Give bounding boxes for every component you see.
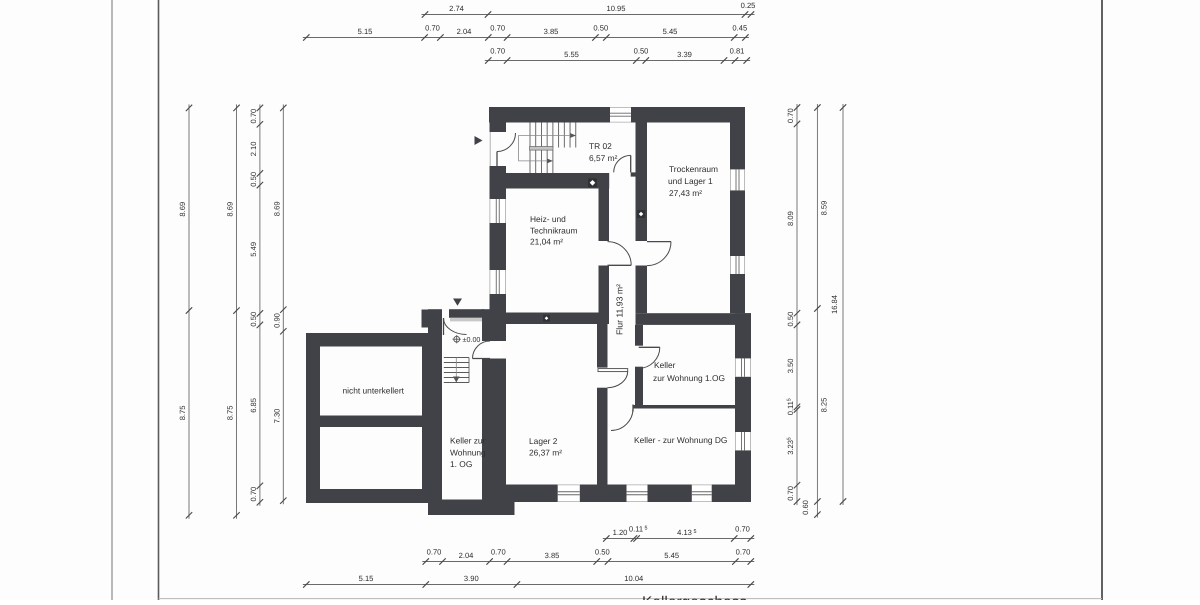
svg-text:6.85: 6.85: [249, 398, 258, 413]
svg-text:0.11: 0.11: [786, 401, 795, 415]
svg-text:zur Wohnung 1.OG: zur Wohnung 1.OG: [653, 373, 725, 383]
svg-text:5.15: 5.15: [359, 574, 374, 583]
svg-text:0.50: 0.50: [634, 47, 649, 56]
svg-text:5: 5: [645, 526, 648, 532]
svg-text:0.60: 0.60: [801, 500, 810, 515]
svg-text:5.15: 5.15: [358, 27, 373, 36]
svg-text:26,37 m²: 26,37 m²: [529, 448, 562, 458]
svg-text:Keller zur: Keller zur: [450, 436, 486, 446]
svg-text:0.70: 0.70: [736, 548, 751, 557]
svg-text:±0.00: ±0.00: [463, 335, 481, 344]
svg-text:27,43 m²: 27,43 m²: [669, 188, 702, 198]
svg-text:5: 5: [787, 398, 793, 401]
svg-text:0.70: 0.70: [490, 47, 505, 56]
svg-text:16.84: 16.84: [830, 295, 839, 314]
svg-text:und Lager 1: und Lager 1: [668, 176, 713, 186]
svg-text:2.74: 2.74: [449, 4, 464, 13]
svg-text:Technikraum: Technikraum: [530, 226, 577, 236]
svg-text:0.70: 0.70: [425, 24, 440, 33]
svg-text:3.85: 3.85: [545, 551, 560, 560]
svg-text:Heiz- und: Heiz- und: [530, 214, 566, 224]
svg-text:Flur 11,93 m²: Flur 11,93 m²: [615, 284, 625, 335]
svg-text:0.25: 0.25: [741, 1, 756, 10]
svg-text:0.50: 0.50: [595, 548, 610, 557]
svg-text:5.45: 5.45: [663, 27, 678, 36]
svg-text:5: 5: [694, 529, 697, 535]
svg-text:7.30: 7.30: [272, 409, 281, 424]
svg-text:4.13: 4.13: [677, 528, 692, 537]
svg-text:3.50: 3.50: [786, 359, 795, 374]
svg-text:5.55: 5.55: [564, 50, 579, 59]
svg-text:Lager 2: Lager 2: [529, 436, 558, 446]
svg-text:2.10: 2.10: [249, 142, 258, 157]
svg-text:0.70: 0.70: [735, 525, 750, 534]
svg-text:8.75: 8.75: [226, 406, 235, 421]
svg-text:0.70: 0.70: [491, 548, 506, 557]
svg-text:3.90: 3.90: [464, 574, 479, 583]
svg-text:10.95: 10.95: [606, 4, 625, 13]
svg-text:6,57 m²: 6,57 m²: [589, 153, 618, 163]
svg-text:TR 02: TR 02: [589, 141, 612, 151]
svg-text:3.85: 3.85: [544, 27, 559, 36]
svg-text:Kellergeschoss: Kellergeschoss: [642, 594, 747, 600]
svg-text:0.11: 0.11: [629, 525, 643, 534]
svg-text:5.49: 5.49: [249, 242, 258, 257]
svg-text:10.04: 10.04: [624, 574, 643, 583]
svg-text:0.70: 0.70: [427, 548, 442, 557]
svg-text:3.39: 3.39: [677, 50, 692, 59]
svg-text:3.23: 3.23: [786, 440, 795, 455]
svg-text:0.70: 0.70: [786, 108, 795, 123]
svg-text:0.70: 0.70: [490, 24, 505, 33]
svg-text:1. OG: 1. OG: [450, 459, 472, 469]
svg-text:0.50: 0.50: [786, 312, 795, 327]
svg-text:8.59: 8.59: [819, 201, 828, 216]
svg-text:0.70: 0.70: [786, 486, 795, 501]
svg-text:5: 5: [787, 437, 793, 440]
svg-text:Trockenraum: Trockenraum: [669, 164, 718, 174]
svg-text:0.70: 0.70: [249, 487, 258, 502]
svg-text:8.09: 8.09: [786, 211, 795, 226]
svg-text:21,04 m²: 21,04 m²: [530, 237, 563, 247]
svg-text:2.04: 2.04: [459, 551, 474, 560]
svg-text:8.25: 8.25: [819, 398, 828, 413]
svg-text:2.04: 2.04: [457, 27, 472, 36]
svg-text:Keller: Keller: [654, 360, 676, 370]
svg-text:8.69: 8.69: [272, 201, 281, 216]
svg-text:0.45: 0.45: [732, 24, 747, 33]
svg-text:Keller - zur Wohnung DG: Keller - zur Wohnung DG: [634, 435, 727, 445]
svg-text:8.69: 8.69: [178, 202, 187, 217]
svg-text:5.45: 5.45: [664, 551, 679, 560]
svg-text:0.81: 0.81: [730, 47, 745, 56]
svg-text:0.50: 0.50: [249, 312, 258, 327]
svg-text:0.50: 0.50: [249, 172, 258, 187]
svg-text:0.50: 0.50: [593, 24, 608, 33]
svg-text:0.90: 0.90: [272, 313, 281, 328]
svg-text:1.20: 1.20: [613, 528, 628, 537]
svg-text:Wohnung: Wohnung: [450, 448, 486, 458]
svg-text:8.75: 8.75: [178, 406, 187, 421]
svg-text:nicht unterkellert: nicht unterkellert: [343, 386, 405, 396]
svg-text:0.70: 0.70: [249, 109, 258, 124]
svg-text:8.69: 8.69: [226, 202, 235, 217]
